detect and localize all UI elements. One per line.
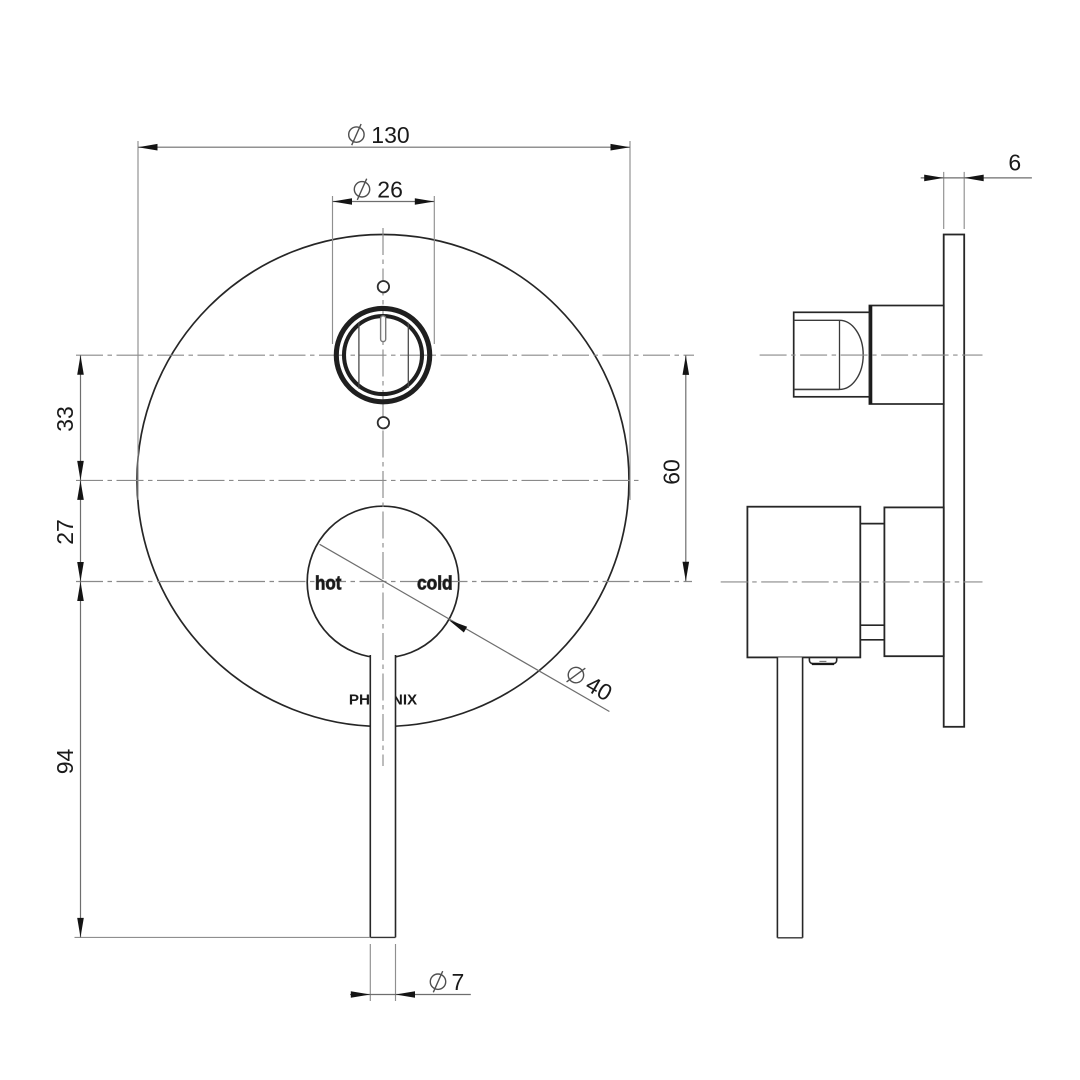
svg-text:40: 40: [582, 671, 617, 706]
svg-text:hot: hot: [315, 571, 341, 593]
svg-text:7: 7: [452, 969, 465, 995]
svg-text:26: 26: [377, 177, 403, 203]
svg-text:60: 60: [659, 459, 685, 485]
svg-text:130: 130: [371, 122, 409, 148]
svg-text:94: 94: [52, 749, 78, 775]
svg-text:27: 27: [52, 519, 78, 545]
svg-text:cold: cold: [417, 572, 453, 594]
svg-text:33: 33: [52, 406, 78, 432]
svg-text:6: 6: [1008, 150, 1021, 176]
